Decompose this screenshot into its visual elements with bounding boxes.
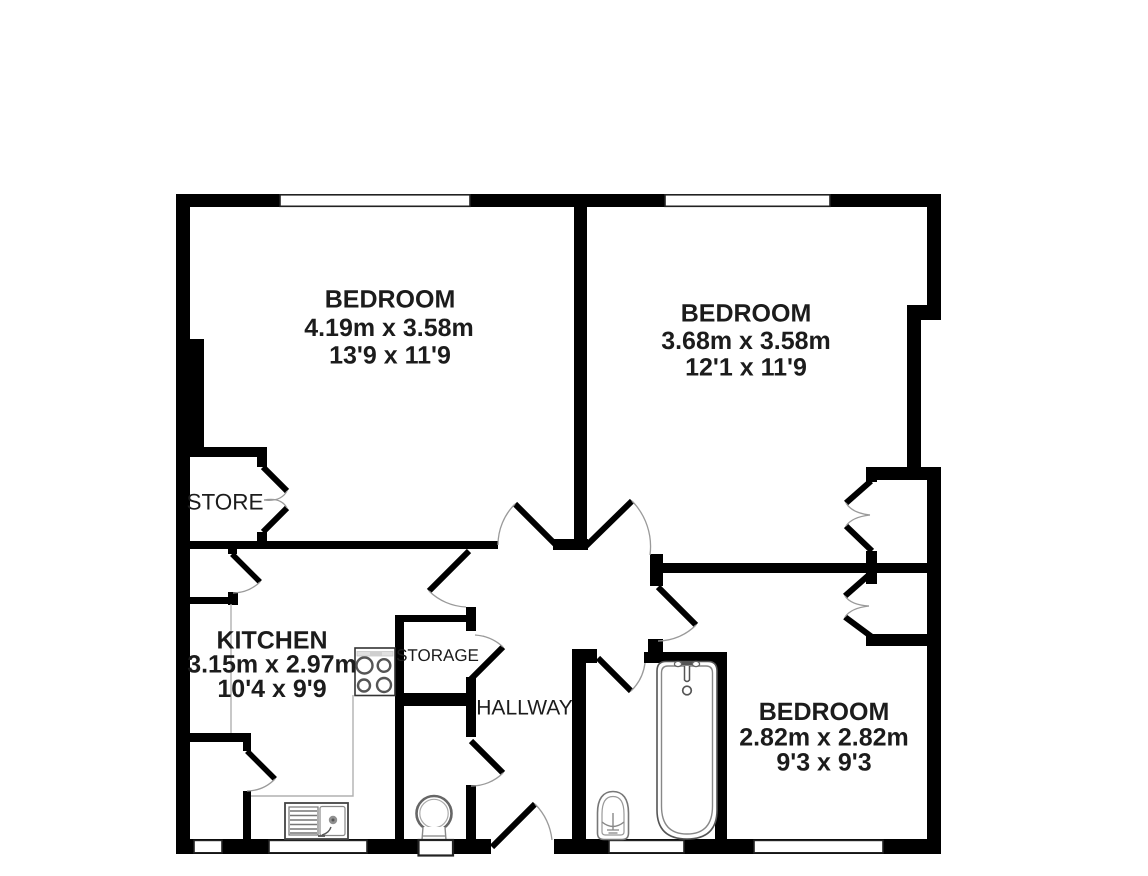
svg-text:3.68m x 3.58m: 3.68m x 3.58m xyxy=(661,327,831,355)
svg-text:10'4 x 9'9: 10'4 x 9'9 xyxy=(217,675,326,703)
svg-text:BEDROOM: BEDROOM xyxy=(325,286,456,314)
svg-text:12'1 x 11'9: 12'1 x 11'9 xyxy=(685,354,807,382)
svg-text:STORE: STORE xyxy=(186,490,263,515)
svg-text:BEDROOM: BEDROOM xyxy=(681,300,812,328)
svg-text:2.82m x 2.82m: 2.82m x 2.82m xyxy=(739,724,909,752)
svg-text:HALLWAY: HALLWAY xyxy=(476,697,572,720)
svg-text:13'9 x 11'9: 13'9 x 11'9 xyxy=(329,342,451,370)
svg-text:4.19m x 3.58m: 4.19m x 3.58m xyxy=(304,314,474,342)
svg-text:9'3 x 9'3: 9'3 x 9'3 xyxy=(776,749,871,777)
svg-text:STORAGE: STORAGE xyxy=(396,646,479,665)
svg-text:BEDROOM: BEDROOM xyxy=(759,698,890,726)
